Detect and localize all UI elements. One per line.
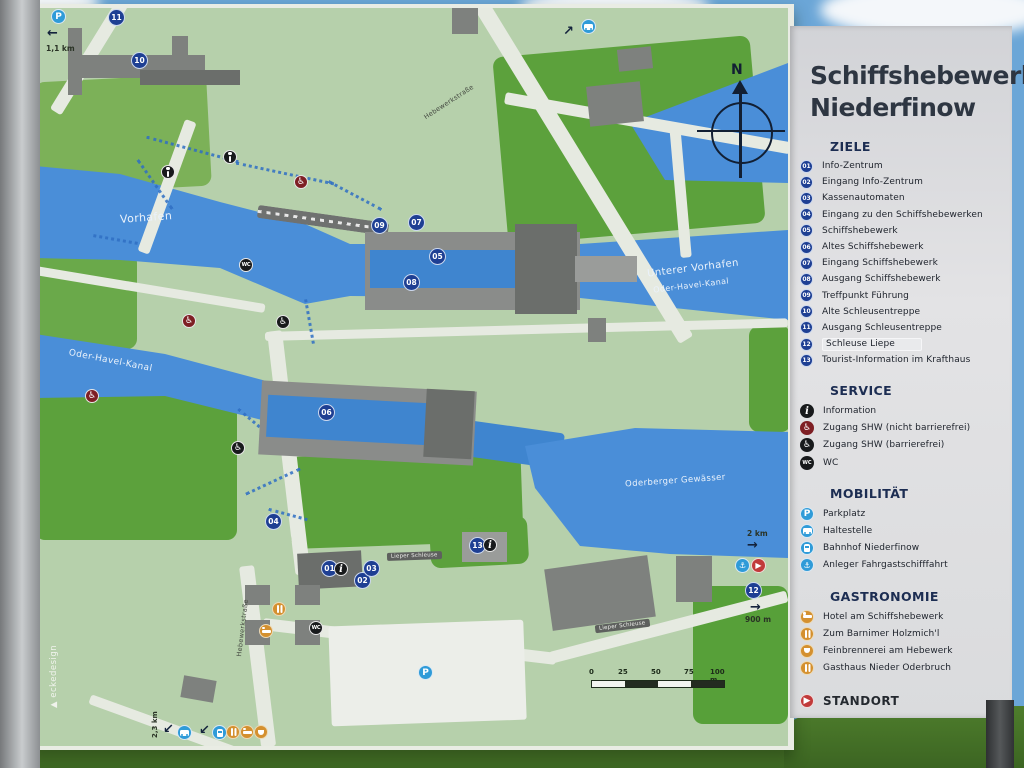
title-line2: Niederfinow <box>810 93 976 122</box>
info-icon: i <box>800 404 814 418</box>
marker-badge: 07 <box>800 257 813 270</box>
marker-badge: 08 <box>800 273 813 286</box>
marker-badge: 06 <box>800 241 813 254</box>
parking-icon: P <box>418 665 433 680</box>
anchor-icon: ⚓ <box>800 558 814 572</box>
wheelchair-glyph: ♿ <box>297 177 305 187</box>
map-marker-10: 10 <box>131 52 148 69</box>
map-marker-05: 05 <box>429 248 446 265</box>
map-marker-06: 06 <box>318 404 335 421</box>
building <box>676 556 712 602</box>
distance-anleger: 2 km <box>747 529 768 538</box>
scale-tick: 0 <box>589 668 594 676</box>
standort-label: STANDORT <box>823 694 899 708</box>
sign-post-left <box>0 0 40 768</box>
section-header-gastronomie: GASTRONOMIE <box>830 589 1012 604</box>
legend-label: Anleger Fahrgastschifffahrt <box>823 560 948 570</box>
marker-badge: 03 <box>800 192 813 205</box>
legend-row: 04Eingang zu den Schiffshebewerken <box>790 207 1012 223</box>
building <box>172 36 188 55</box>
legend-label: Schiffshebewerk <box>822 226 898 236</box>
legend-label: Hotel am Schiffshebewerk <box>823 612 943 622</box>
legend-row: ⚓Anleger Fahrgastschifffahrt <box>790 557 1012 574</box>
marker-number: 04 <box>268 517 278 526</box>
marker-badge: 05 <box>800 224 813 237</box>
arrow-down-left-icon: ↙ <box>163 722 174 737</box>
legend-row: 11Ausgang Schleusentreppe <box>790 320 1012 336</box>
marker-badge: 13 <box>800 354 813 367</box>
marker-number: 05 <box>432 252 442 261</box>
lift-tower <box>515 224 577 314</box>
building <box>586 81 644 126</box>
marker-number: 12 <box>748 586 758 595</box>
info-glyph: i <box>339 564 343 575</box>
north-label: N <box>731 62 743 78</box>
pedestrian-icon <box>161 165 175 179</box>
section-header-service: SERVICE <box>830 383 1012 398</box>
legend-row: 09Treffpunkt Führung <box>790 288 1012 304</box>
legend-row: 10Alte Schleusentreppe <box>790 304 1012 320</box>
map-marker-04: 04 <box>265 513 282 530</box>
legend-label: Altes Schiffshebewerk <box>822 242 924 252</box>
legend-label: Eingang zu den Schiffshebewerken <box>822 210 983 220</box>
legend-label: Bahnhof Niederfinow <box>823 543 919 553</box>
map-area: Vorhafen Unterer Vorhafen Oder-Havel-Kan… <box>35 8 788 746</box>
legend-row: 01Info-Zentrum <box>790 158 1012 174</box>
compass-rose: N <box>695 74 787 188</box>
legend-label: Ausgang Schleusentreppe <box>822 323 942 333</box>
scale-segment <box>691 681 724 687</box>
design-credit: ▲ eckedesign <box>49 645 59 708</box>
road-label-hebewerkstrasse: Hebewerkstraße <box>422 83 475 121</box>
wheelchair-icon: ♿ <box>800 438 814 452</box>
wheelchair-icon: ♿ <box>85 389 99 403</box>
info-icon: i <box>334 562 348 576</box>
legend-row: Bahnhof Niederfinow <box>790 540 1012 557</box>
legend-row: ♿Zugang SHW (nicht barrierefrei) <box>790 420 1012 437</box>
green-patch <box>35 388 237 540</box>
legend-label: Kassenautomaten <box>822 193 905 203</box>
parking-icon: P <box>51 9 66 24</box>
trail <box>236 162 334 186</box>
building <box>452 8 478 34</box>
arrow-up-right-icon: ↗ <box>563 24 574 39</box>
bus-icon <box>177 725 192 740</box>
distance-haltestelle: 2,3 km <box>151 711 159 738</box>
wheelchair-glyph: ♿ <box>803 440 811 450</box>
legend-row: 12Schleuse Liepe <box>790 336 1012 352</box>
marker-number: 03 <box>366 564 376 573</box>
restaurant-icon <box>800 627 814 641</box>
marker-number: 13 <box>472 541 482 550</box>
wc-icon: WC <box>239 258 253 272</box>
legend-row: PParkplatz <box>790 505 1012 522</box>
anchor-glyph: ⚓ <box>739 561 746 570</box>
wheelchair-icon: ♿ <box>294 175 308 189</box>
parking-icon: P <box>800 507 814 521</box>
map-marker-12: 12 <box>745 582 762 599</box>
train-icon <box>800 541 814 555</box>
legend-row: Zum Barnimer Holzmich'l <box>790 625 1012 642</box>
legend-row: 06Altes Schiffshebewerk <box>790 239 1012 255</box>
wheelchair-icon: ♿ <box>800 421 814 435</box>
hotel-icon <box>240 725 254 739</box>
info-icon: i <box>483 538 497 552</box>
standort-icon: ▶ <box>751 558 766 573</box>
legend-row: Feinbrennerei am Hebewerk <box>790 642 1012 659</box>
marker-badge: 12 <box>800 338 813 351</box>
anchor-icon: ⚓ <box>735 558 750 573</box>
legend-label: Eingang Info-Zentrum <box>822 177 923 187</box>
sign-title: Schiffshebewerke Niederfinow <box>810 60 1012 124</box>
scale-tick: 25 <box>618 668 628 676</box>
wheelchair-icon: ♿ <box>182 314 196 328</box>
wheelchair-icon: ♿ <box>276 315 290 329</box>
legend-label: WC <box>823 458 838 468</box>
marker-number: 09 <box>374 221 384 230</box>
marker-number: 07 <box>411 218 421 227</box>
arrow-left-icon: ← <box>47 26 58 41</box>
info-glyph: i <box>805 406 809 417</box>
road <box>265 318 788 341</box>
marker-number: 10 <box>134 56 144 65</box>
legend-row: ♿Zugang SHW (barrierefrei) <box>790 437 1012 454</box>
legend-label: Parkplatz <box>823 509 865 519</box>
restaurant-icon <box>226 725 240 739</box>
legend-panel: Schiffshebewerke Niederfinow ZIELE 01Inf… <box>790 26 1012 718</box>
marker-number: 06 <box>321 408 331 417</box>
new-lift-tower <box>423 389 474 459</box>
legend-label: Haltestelle <box>823 526 872 536</box>
legend-label: Zum Barnimer Holzmich'l <box>823 629 940 639</box>
section-header-mobilitaet: MOBILITÄT <box>830 486 1012 501</box>
marker-badge: 04 <box>800 208 813 221</box>
wc-icon: WC <box>800 456 814 470</box>
wc-glyph: WC <box>802 460 811 466</box>
standort-glyph: ▶ <box>755 561 761 570</box>
wheelchair-glyph: ♿ <box>88 391 96 401</box>
restaurant-icon <box>800 661 814 675</box>
drink-icon <box>800 644 814 658</box>
legend-row: 07Eingang Schiffshebewerk <box>790 255 1012 271</box>
map-marker-03: 03 <box>363 560 380 577</box>
drink-icon <box>254 725 268 739</box>
legend-row: 05Schiffshebewerk <box>790 223 1012 239</box>
standort-row: ▶ STANDORT <box>790 693 1012 710</box>
legend-row: iInformation <box>790 402 1012 419</box>
legend-label: Schleuse Liepe <box>822 338 922 351</box>
section-header-ziele: ZIELE <box>830 139 1012 154</box>
arrow-right-icon: → <box>747 538 758 553</box>
pedestrian-icon <box>223 150 237 164</box>
restaurant-icon <box>272 602 286 616</box>
sign-post-right <box>986 700 1014 768</box>
scale-bar-segments <box>591 680 725 688</box>
scale-segment <box>625 681 658 687</box>
legend-row: 02Eingang Info-Zentrum <box>790 174 1012 190</box>
legend-label: Alte Schleusentreppe <box>822 307 920 317</box>
wheelchair-glyph: ♿ <box>279 317 287 327</box>
scale-tick: 50 <box>651 668 661 676</box>
legend-row: 03Kassenautomaten <box>790 190 1012 206</box>
legend-label: Eingang Schiffshebewerk <box>822 258 938 268</box>
wc-icon: WC <box>309 621 323 635</box>
standort-glyph: ▶ <box>804 696 811 706</box>
arrow-down-left-icon: ↙ <box>199 723 210 738</box>
building <box>140 70 240 85</box>
building <box>180 675 216 702</box>
map-marker-08: 08 <box>403 274 420 291</box>
legend-row: WCWC <box>790 454 1012 471</box>
hotel-icon <box>259 624 273 638</box>
map-marker-11: 11 <box>108 9 125 26</box>
legend-label: Zugang SHW (barrierefrei) <box>823 440 944 450</box>
legend-row: Haltestelle <box>790 522 1012 539</box>
marker-badge: 02 <box>800 176 813 189</box>
legend-row: 08Ausgang Schiffshebewerk <box>790 271 1012 287</box>
map-marker-09: 09 <box>371 217 388 234</box>
scale-tick: 75 <box>684 668 694 676</box>
standort-icon: ▶ <box>800 694 814 708</box>
distance-parkplatz: 1,1 km <box>46 44 75 53</box>
bus-icon <box>800 524 814 538</box>
building <box>617 46 653 71</box>
scale-segment <box>658 681 691 687</box>
arrow-right-icon: → <box>750 600 761 615</box>
marker-number: 08 <box>406 278 416 287</box>
green-patch <box>749 326 788 432</box>
legend-label: Info-Zentrum <box>822 161 883 171</box>
legend-label: Ausgang Schiffshebewerk <box>822 274 941 284</box>
wheelchair-glyph: ♿ <box>185 316 193 326</box>
marker-badge: 10 <box>800 305 813 318</box>
hotel-icon <box>800 610 814 624</box>
marker-badge: 01 <box>800 160 813 173</box>
scale-bar: 0 25 50 75 100 m <box>591 668 727 690</box>
legend-label: Gasthaus Nieder Oderbruch <box>823 663 951 673</box>
anchor-glyph: ⚓ <box>803 561 810 570</box>
marker-badge: 09 <box>800 289 813 302</box>
legend-row: 13Tourist-Information im Krafthaus <box>790 352 1012 368</box>
compass-ring <box>711 102 773 164</box>
building <box>588 318 606 342</box>
distance-schleuse: 900 m <box>745 615 771 624</box>
parking-glyph: P <box>55 12 62 22</box>
legend-label: Zugang SHW (nicht barrierefrei) <box>823 423 970 433</box>
marker-number: 11 <box>111 13 121 22</box>
parking-glyph: P <box>422 668 429 678</box>
scale-segment <box>592 681 625 687</box>
wheelchair-glyph: ♿ <box>803 423 811 433</box>
bus-icon <box>581 19 596 34</box>
building <box>295 585 320 605</box>
legend-label: Information <box>823 406 876 416</box>
wc-glyph: WC <box>242 262 251 268</box>
legend-row: Gasthaus Nieder Oderbruch <box>790 660 1012 677</box>
wheelchair-glyph: ♿ <box>234 443 242 453</box>
forest-patch <box>35 253 137 349</box>
wc-glyph: WC <box>312 625 321 631</box>
parking-glyph: P <box>804 509 811 519</box>
marker-badge: 11 <box>800 321 813 334</box>
map-marker-07: 07 <box>408 214 425 231</box>
legend-label: Tourist-Information im Krafthaus <box>822 355 970 365</box>
legend-row: Hotel am Schiffshebewerk <box>790 608 1012 625</box>
wheelchair-icon: ♿ <box>231 441 245 455</box>
trail <box>328 180 382 211</box>
title-line1: Schiffshebewerke <box>810 61 1024 90</box>
train-icon <box>212 725 227 740</box>
legend-label: Feinbrennerei am Hebewerk <box>823 646 953 656</box>
marker-number: 02 <box>357 576 367 585</box>
lock-approach <box>575 256 637 282</box>
legend-label: Treffpunkt Führung <box>822 291 909 301</box>
info-glyph: i <box>488 540 492 551</box>
